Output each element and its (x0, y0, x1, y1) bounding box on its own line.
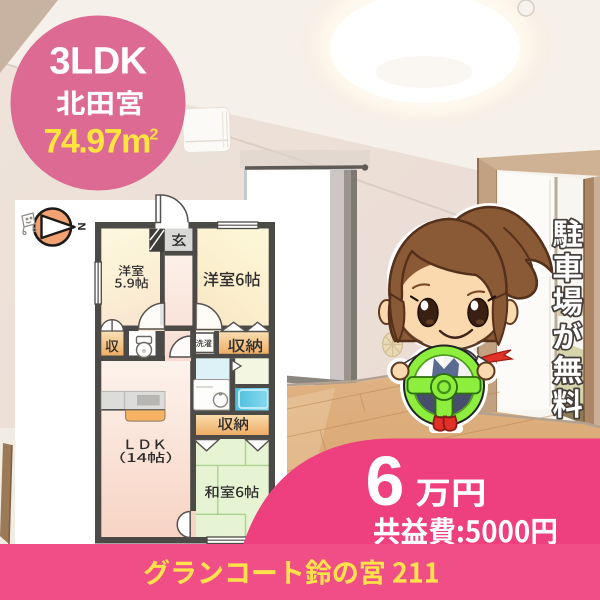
svg-text:2: 2 (150, 127, 159, 144)
svg-text:3LDK: 3LDK (49, 41, 147, 83)
svg-text:N: N (75, 223, 87, 231)
svg-text:6: 6 (366, 442, 405, 520)
svg-text:74.97m: 74.97m (44, 123, 151, 161)
